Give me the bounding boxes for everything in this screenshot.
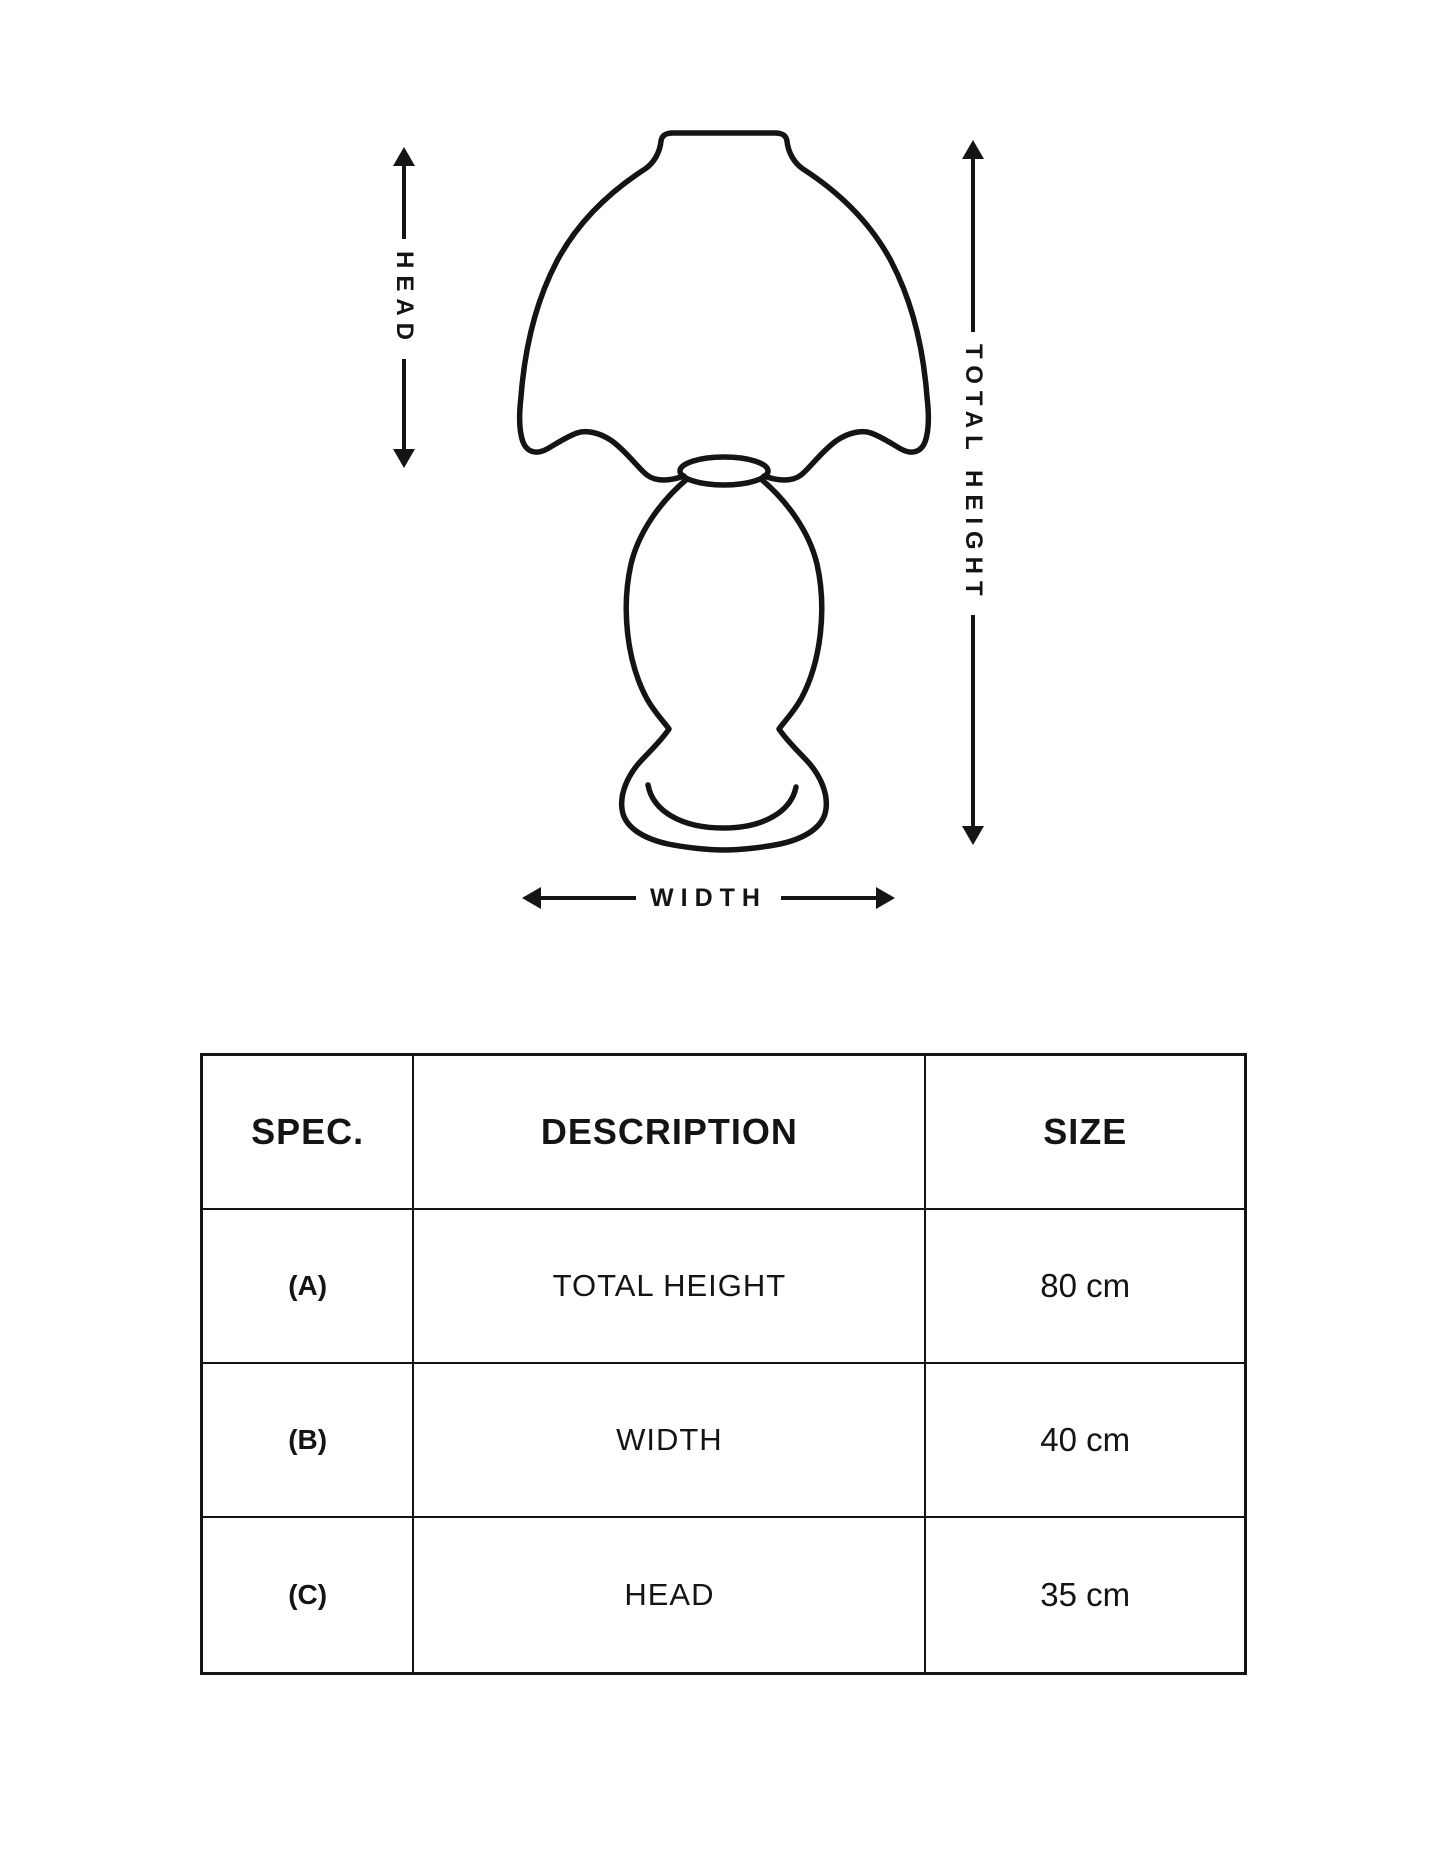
table-row-b-description: WIDTH: [414, 1364, 926, 1518]
dimension-line: [541, 896, 636, 900]
total-height-dimension-label: TOTAL HEIGHT: [959, 344, 987, 603]
arrow-down-icon: [393, 449, 415, 468]
spec-column-header: SPEC.: [203, 1056, 414, 1210]
table-row-b-size: 40 cm: [926, 1364, 1244, 1518]
width-dimension-indicator: WIDTH: [522, 880, 895, 916]
head-dimension-label: HEAD: [390, 251, 418, 347]
table-row-a-size: 80 cm: [926, 1210, 1244, 1364]
table-row-a-spec: (A): [203, 1210, 414, 1364]
size-column-header: SIZE: [926, 1056, 1244, 1210]
head-dimension-indicator: HEAD: [389, 147, 419, 468]
table-row-a-description: TOTAL HEIGHT: [414, 1210, 926, 1364]
spec-sheet-page: HEAD TOTAL HEIGHT WIDTH SPEC. DESCRIPTIO…: [0, 0, 1445, 1869]
dimension-line: [971, 615, 975, 826]
dimension-line: [402, 359, 406, 449]
spec-table: SPEC. DESCRIPTION SIZE (A) TOTAL HEIGHT …: [200, 1053, 1247, 1675]
table-row-b-spec: (B): [203, 1364, 414, 1518]
arrow-up-icon: [393, 147, 415, 166]
arrow-up-icon: [962, 140, 984, 159]
arrow-down-icon: [962, 826, 984, 845]
arrow-left-icon: [522, 887, 541, 909]
width-dimension-label: WIDTH: [650, 884, 767, 913]
arrow-right-icon: [876, 887, 895, 909]
table-row-c-size: 35 cm: [926, 1518, 1244, 1672]
description-column-header: DESCRIPTION: [414, 1056, 926, 1210]
table-row-c-spec: (C): [203, 1518, 414, 1672]
table-row-c-description: HEAD: [414, 1518, 926, 1672]
lamp-base-inner-curve: [648, 785, 796, 828]
lampshade-outline: [520, 133, 929, 480]
dimension-line: [781, 896, 876, 900]
dimension-line: [971, 159, 975, 332]
dimension-line: [402, 166, 406, 239]
total-height-dimension-indicator: TOTAL HEIGHT: [958, 140, 988, 845]
lamp-collar-ellipse: [680, 457, 768, 485]
table-lamp-drawing: [440, 110, 1010, 870]
